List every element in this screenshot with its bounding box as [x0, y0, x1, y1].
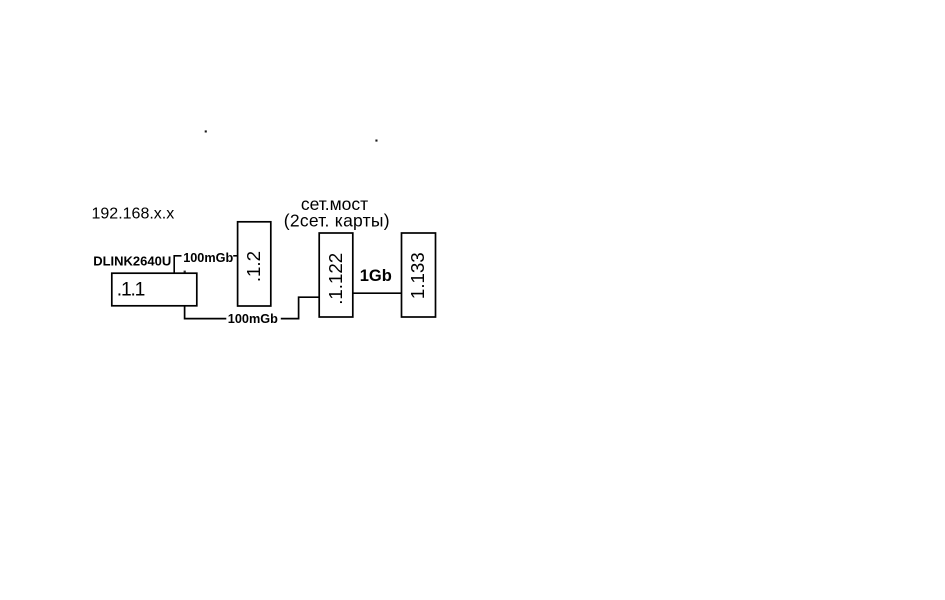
svg-text:DLINK2640U: DLINK2640U [93, 254, 171, 269]
svg-text:1.133: 1.133 [407, 252, 428, 299]
svg-text:.1.122: .1.122 [325, 253, 346, 305]
svg-text:100mGb: 100mGb [228, 312, 278, 326]
svg-text:.1.1: .1.1 [117, 280, 145, 301]
svg-text:1Gb: 1Gb [360, 267, 392, 285]
svg-text:100mGb: 100mGb [183, 251, 233, 265]
svg-text:192.168.x.x: 192.168.x.x [92, 206, 175, 223]
svg-text:(2сет. карты): (2сет. карты) [284, 210, 390, 230]
svg-text:.1.2: .1.2 [243, 251, 264, 282]
